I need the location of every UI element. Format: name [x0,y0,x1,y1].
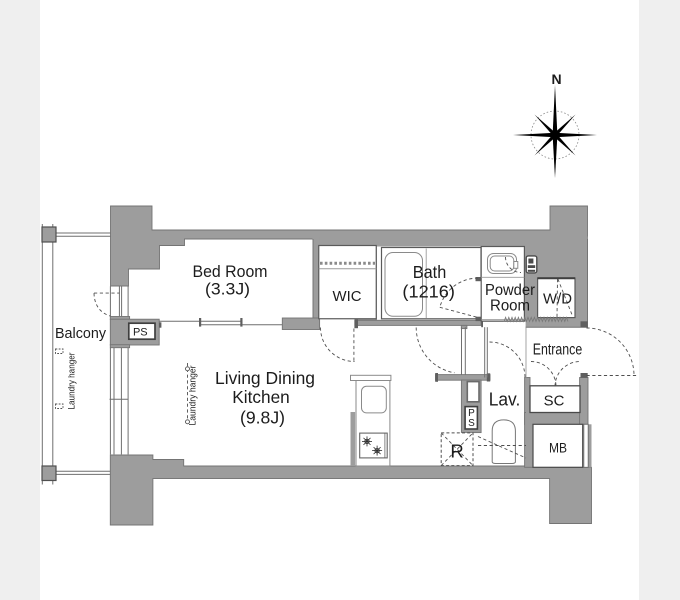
svg-text:R: R [450,440,463,461]
svg-text:N: N [551,71,561,87]
svg-text:W/D: W/D [543,291,572,308]
svg-text:Bed Room: Bed Room [193,262,268,281]
svg-text:SC: SC [544,393,565,410]
svg-text:(1216): (1216) [402,282,455,302]
svg-text:Laundry hanger: Laundry hanger [67,353,77,410]
svg-text:S: S [468,418,475,429]
svg-text:Powder: Powder [485,282,535,299]
svg-text:WIC: WIC [333,288,362,305]
svg-text:Bath: Bath [413,262,447,282]
svg-text:Laundry hanger: Laundry hanger [188,366,198,426]
svg-text:Kitchen: Kitchen [232,387,290,407]
svg-text:Balcony: Balcony [55,325,106,342]
svg-text:Living Dining: Living Dining [215,368,315,388]
svg-text:Room: Room [490,298,530,315]
svg-text:MB: MB [549,439,567,455]
svg-text:Entrance: Entrance [533,341,583,358]
svg-text:(3.3J): (3.3J) [205,280,250,299]
svg-text:PS: PS [133,326,148,338]
svg-text:Lav.: Lav. [489,389,521,409]
svg-text:(9.8J): (9.8J) [240,408,285,428]
